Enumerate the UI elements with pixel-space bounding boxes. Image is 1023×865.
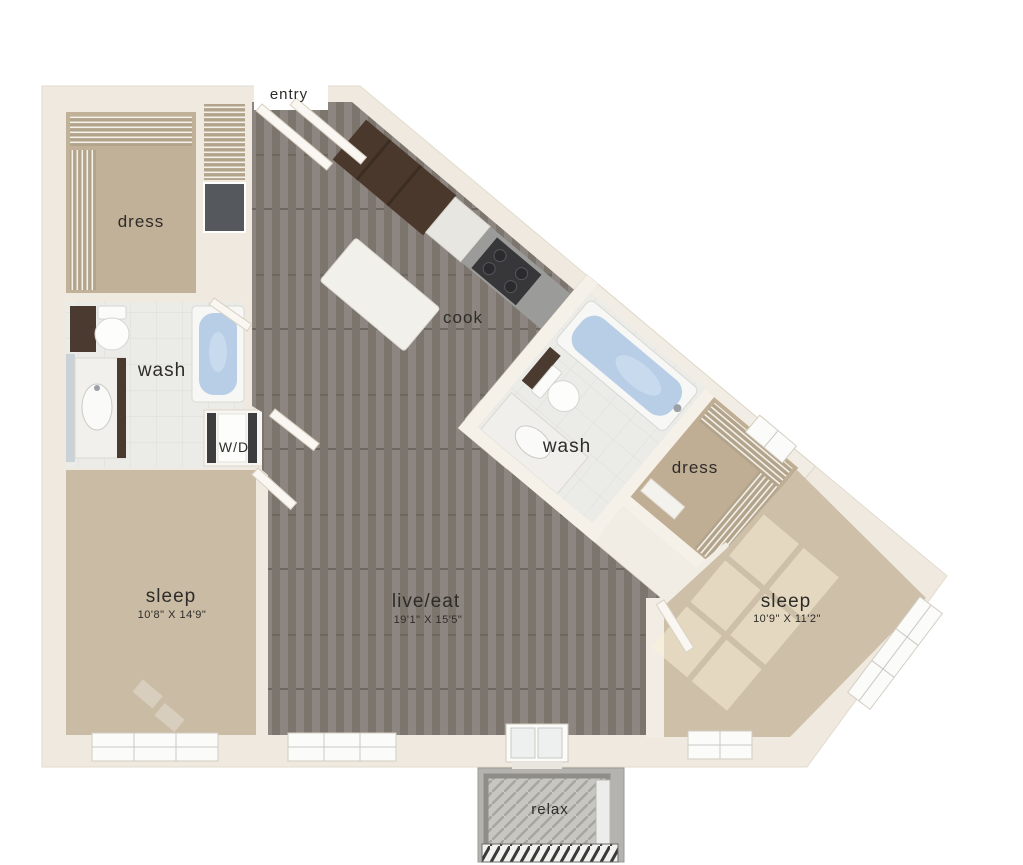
utility-chase — [204, 183, 245, 232]
wash-right-label: wash — [542, 436, 591, 457]
entry-label: entry — [270, 86, 308, 103]
door-pane — [511, 728, 535, 758]
live-eat-dims: 19'1" X 15'5" — [394, 614, 463, 626]
balcony-rail-right — [596, 780, 610, 844]
live-eat-label: live/eat — [392, 591, 460, 612]
floor-plan-drawing: entry dress wash W/D cook wash dress sle… — [0, 0, 1023, 865]
faucet-icon — [94, 385, 100, 391]
laundry-closet — [204, 410, 264, 466]
vanity-side-panel — [117, 358, 126, 458]
dress-left-label: dress — [118, 212, 165, 231]
toilet-icon — [95, 318, 129, 350]
sleep-right-label: sleep — [761, 591, 811, 612]
bath-cabinet-icon — [70, 306, 96, 352]
balcony-door — [506, 724, 568, 769]
entry-closet-shelves — [204, 104, 245, 180]
dress-right-label: dress — [672, 458, 719, 477]
cook-label: cook — [443, 308, 483, 327]
wall — [646, 598, 664, 738]
dryer-icon — [248, 413, 257, 463]
wire-shelf-icon — [70, 116, 192, 146]
relax-label: relax — [531, 801, 569, 818]
door-step — [512, 762, 562, 769]
door-pane — [538, 728, 562, 758]
dress-room-left — [66, 112, 196, 293]
sleep-right-dims: 10'9" X 11'2" — [753, 613, 821, 625]
wire-shelf-icon — [70, 150, 96, 290]
sleep-left-label: sleep — [146, 586, 196, 607]
toilet-tank-icon — [98, 306, 126, 319]
shower-glass-icon — [66, 354, 75, 462]
balcony-railing-icon — [482, 844, 618, 862]
sleep-left-dims: 10'8" X 14'9" — [138, 609, 207, 621]
wash-left-label: wash — [137, 360, 186, 381]
floor-plan-page: entry dress wash W/D cook wash dress sle… — [0, 0, 1023, 865]
laundry-label: W/D — [219, 439, 249, 455]
washer-icon — [207, 413, 216, 463]
water-highlight — [209, 332, 227, 372]
